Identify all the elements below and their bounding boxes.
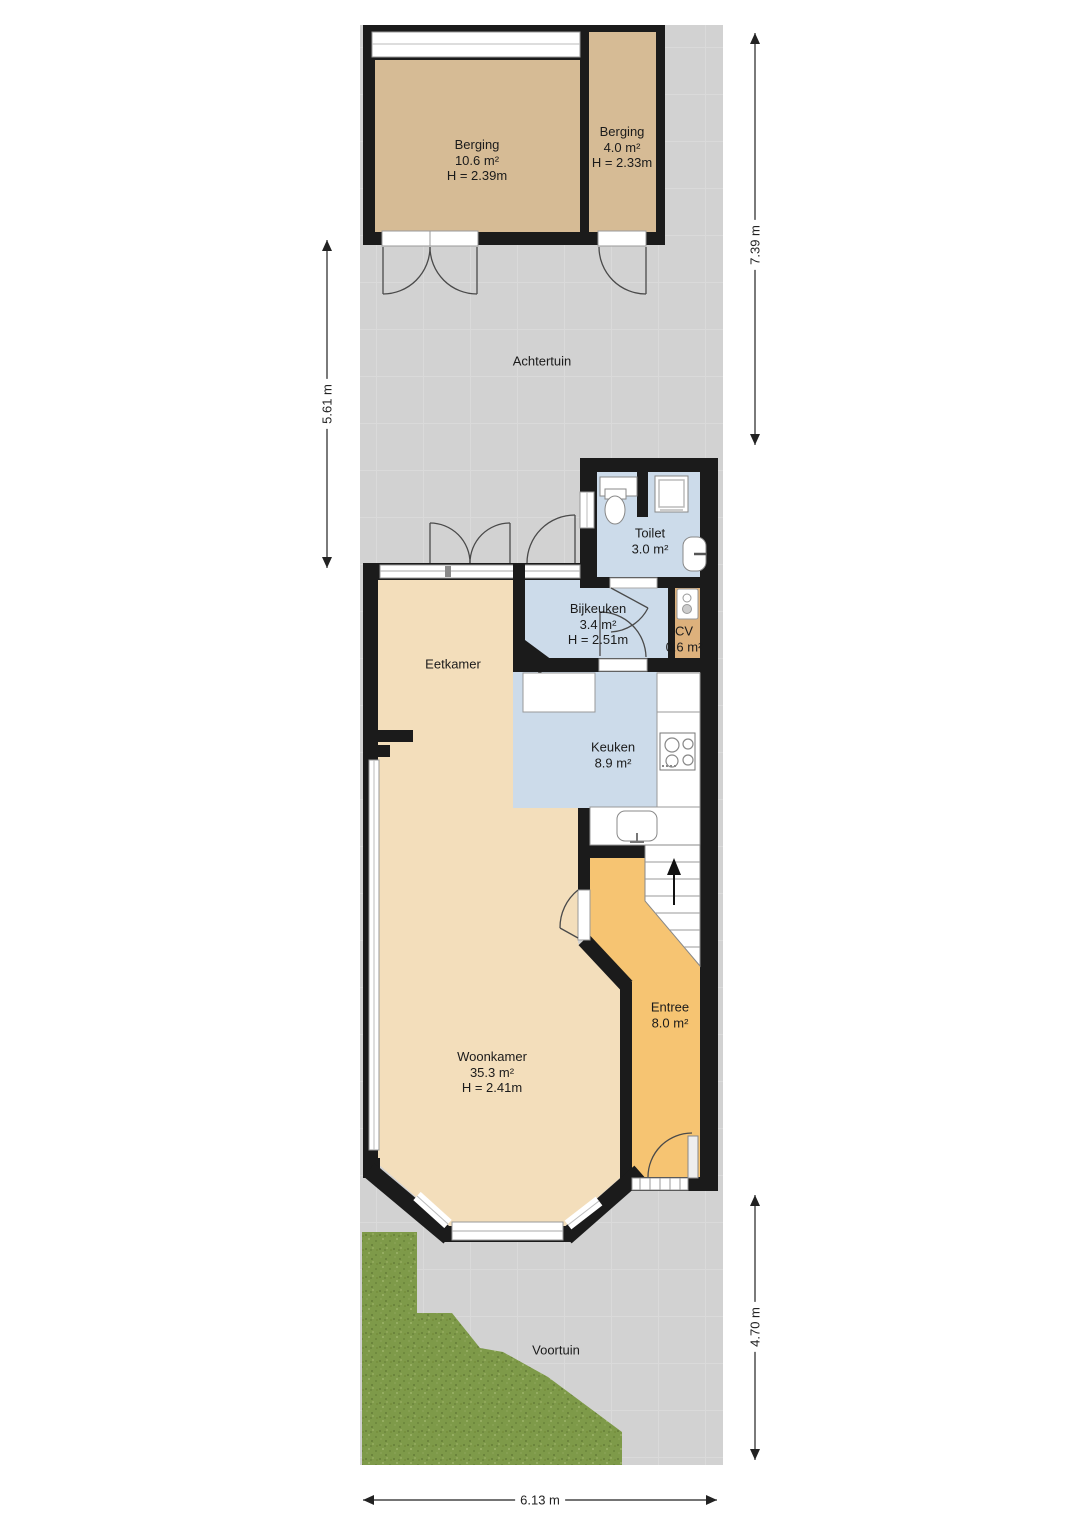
room-area: 8.0 m² [651, 1015, 689, 1031]
label-woonkamer: Woonkamer 35.3 m² H = 2.41m [457, 1049, 527, 1096]
room-area: 3.4 m² [568, 616, 628, 632]
room-area: 4.0 m² [592, 139, 652, 155]
label-eetkamer: Eetkamer [425, 656, 481, 672]
label-toilet: Toilet 3.0 m² [632, 526, 669, 557]
room-area: 0.6 m² [666, 639, 703, 655]
label-achtertuin: Achtertuin [513, 353, 572, 369]
dimension-front-depth-right: 4.70 m [747, 1302, 764, 1352]
room-name: Toilet [632, 526, 669, 542]
room-name: Woonkamer [457, 1049, 527, 1065]
room-name: Achtertuin [513, 353, 572, 369]
room-name: Entree [651, 1000, 689, 1016]
room-name: Bijkeuken [568, 601, 628, 617]
room-height: H = 2.33m [592, 155, 652, 171]
label-berging-right: Berging 4.0 m² H = 2.33m [592, 124, 652, 171]
room-name: Eetkamer [425, 656, 481, 672]
floorplan-drawing [0, 0, 1080, 1526]
room-height: H = 2.51m [568, 632, 628, 648]
floorplan-canvas: Berging 10.6 m² H = 2.39m Berging 4.0 m²… [0, 0, 1080, 1526]
label-keuken: Keuken 8.9 m² [591, 740, 635, 771]
dimension-garden-depth-right: 7.39 m [747, 220, 764, 270]
room-name: Keuken [591, 740, 635, 756]
stove [660, 733, 695, 770]
room-area: 10.6 m² [447, 152, 507, 168]
cv-boiler [677, 589, 698, 619]
room-name: Voortuin [532, 1342, 580, 1358]
label-cv: CV 0.6 m² [666, 624, 703, 655]
room-area: 8.9 m² [591, 755, 635, 771]
kitchen-sink [617, 811, 657, 842]
label-voortuin: Voortuin [532, 1342, 580, 1358]
label-bijkeuken: Bijkeuken 3.4 m² H = 2.51m [568, 601, 628, 648]
room-area: 35.3 m² [457, 1064, 527, 1080]
dimension-lot-width-bottom: 6.13 m [515, 1492, 565, 1509]
room-name: CV [666, 624, 703, 640]
dimension-garden-depth-left: 5.61 m [319, 379, 336, 429]
room-area: 3.0 m² [632, 541, 669, 557]
label-berging-left: Berging 10.6 m² H = 2.39m [447, 137, 507, 184]
room-height: H = 2.41m [457, 1080, 527, 1096]
room-name: Berging [447, 137, 507, 153]
room-name: Berging [592, 124, 652, 140]
label-entree: Entree 8.0 m² [651, 1000, 689, 1031]
room-height: H = 2.39m [447, 168, 507, 184]
